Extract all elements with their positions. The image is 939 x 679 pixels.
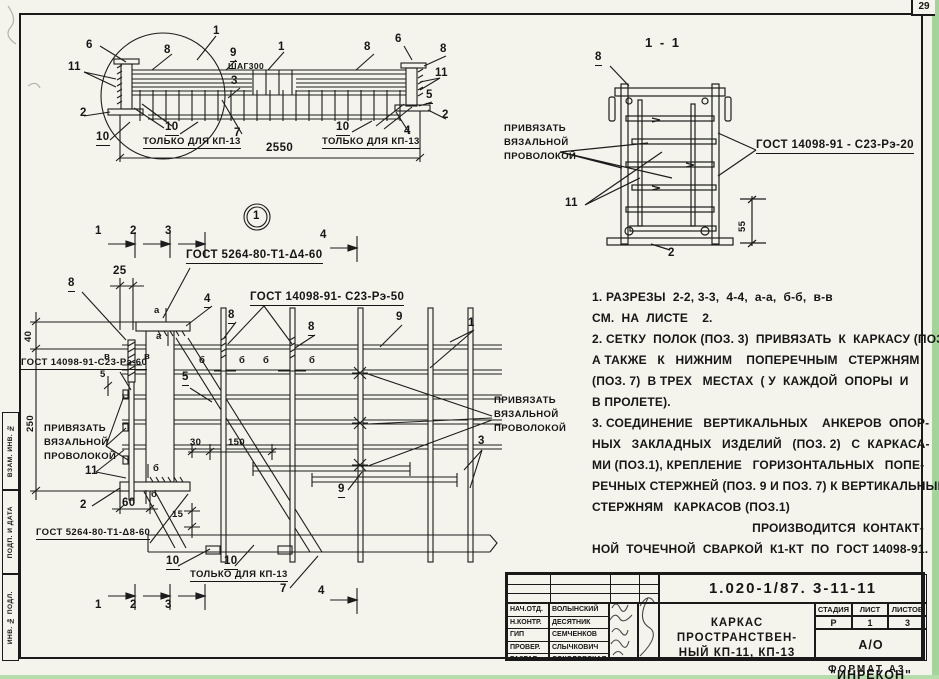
sheets-value: 3 bbox=[888, 616, 927, 629]
section-marker-2: 2 bbox=[130, 600, 137, 612]
note-line: ПРОИЗВОДИТСЯ КОНТАКТ- bbox=[592, 518, 924, 539]
person-name: СЛЫЧКОВИЧ bbox=[550, 641, 608, 654]
note-only-kp13: ТОЛЬКО ДЛЯ КП-13 bbox=[322, 137, 420, 149]
gost-weld-label: ГОСТ 5264-80-Т1-Δ8-60 bbox=[36, 528, 150, 540]
dim-5: 5 bbox=[100, 370, 106, 380]
callout-3: 3 bbox=[231, 76, 238, 88]
section-marker-3: 3 bbox=[165, 600, 172, 612]
note-line: НОЙ ТОЧЕЧНОЙ СВАРКОЙ К1-КТ ПО ГОСТ 14098… bbox=[592, 539, 924, 560]
callout-8: 8 bbox=[68, 278, 75, 292]
mark-b: б bbox=[263, 356, 269, 366]
signatures-column bbox=[609, 603, 638, 661]
mark-b: б bbox=[153, 464, 159, 474]
drawing-title-line1: КАРКАС ПРОСТРАНСТВЕН- bbox=[660, 604, 814, 646]
callout-4: 4 bbox=[204, 294, 211, 308]
tie-note-line2: ВЯЗАЛЬНОЙ bbox=[44, 438, 109, 448]
note-line: (ПОЗ. 7) В ТРЕХ МЕСТАХ ( У КАЖДОЙ ОПОРЫ … bbox=[592, 371, 924, 392]
callout-2: 2 bbox=[668, 248, 675, 260]
role-label: Н.КОНТР. bbox=[508, 616, 548, 629]
drawing-sheet: 29 ВЗАМ. ИНВ. № ПОДП. И ДАТА ИНВ. № ПОДЛ… bbox=[0, 0, 939, 679]
role-label: ГИП bbox=[508, 628, 548, 641]
drawing-title-line2: НЫЙ КП-11, КП-13 bbox=[660, 646, 814, 661]
mark-a: а bbox=[156, 332, 162, 342]
callout-10: 10 bbox=[165, 122, 179, 136]
tie-note-line1: ПРИВЯЗАТЬ bbox=[494, 396, 556, 406]
callout-8: 8 bbox=[595, 52, 602, 66]
mark-b: б bbox=[239, 356, 245, 366]
mark-v: в bbox=[104, 352, 110, 362]
dim-shag-300: ШАГ300 bbox=[228, 62, 264, 71]
title-block: НАЧ.ОТД. Н.КОНТР. ГИП ПРОВЕР. РАЗРАБ. ВО… bbox=[505, 572, 925, 661]
callout-2: 2 bbox=[442, 110, 449, 122]
callout-9: 9 bbox=[396, 312, 403, 324]
callout-6: 6 bbox=[86, 40, 93, 52]
section-marker-3: 3 bbox=[165, 226, 172, 238]
callout-11: 11 bbox=[565, 198, 578, 210]
stamp-vzam-inv: ВЗАМ. ИНВ. № bbox=[2, 412, 19, 490]
note-line: СМ. НА ЛИСТЕ 2. bbox=[592, 308, 924, 329]
note-only-kp13: ТОЛЬКО ДЛЯ КП-13 bbox=[143, 137, 241, 149]
mark-a: а bbox=[154, 306, 160, 316]
callout-2: 2 bbox=[80, 108, 87, 120]
role-label: ПРОВЕР. bbox=[508, 641, 548, 654]
dim-25: 25 bbox=[113, 266, 127, 278]
section-marker-4: 4 bbox=[318, 586, 325, 598]
dim-150: 150 bbox=[228, 438, 245, 448]
stage-label: СТАДИЯ bbox=[815, 603, 852, 616]
callout-7: 7 bbox=[234, 128, 241, 140]
note-line: А ТАКЖЕ К НИЖНИМ ПОПЕРЕЧНЫМ СТЕРЖНЯМ bbox=[592, 350, 924, 371]
document-number: 1.020-1/87. 3-11-11 bbox=[659, 574, 927, 603]
notes-block: 1. РАЗРЕЗЫ 2-2, 3-3, 4-4, а-а, б-б, в-в … bbox=[592, 287, 924, 560]
note-line: В ПРОЛЕТЕ). bbox=[592, 392, 924, 413]
callout-1: 1 bbox=[278, 42, 285, 54]
callout-6: 6 bbox=[395, 34, 402, 46]
callout-9: 9 bbox=[230, 48, 237, 62]
callout-8: 8 bbox=[228, 310, 235, 324]
callout-10: 10 bbox=[166, 556, 180, 570]
sheets-label: ЛИСТОВ bbox=[888, 603, 927, 616]
tie-note-line1: ПРИВЯЗАТЬ bbox=[504, 124, 566, 134]
note-line: 1. РАЗРЕЗЫ 2-2, 3-3, 4-4, а-а, б-б, в-в bbox=[592, 287, 924, 308]
sheet-number: 29 bbox=[918, 1, 929, 12]
callout-11: 11 bbox=[68, 62, 81, 74]
gost-weld-label: ГОСТ 14098-91 - С23-Рэ-20 bbox=[756, 140, 914, 154]
sheet-label: ЛИСТ bbox=[852, 603, 888, 616]
note-line: РЕЧНЫХ СТЕРЖНЕЙ (ПОЗ. 9 И ПОЗ. 7) К ВЕРТ… bbox=[592, 476, 924, 497]
dim-2550: 2550 bbox=[266, 143, 293, 155]
tie-note-line1: ПРИВЯЗАТЬ bbox=[44, 424, 106, 434]
tie-note-line2: ВЯЗАЛЬНОЙ bbox=[494, 410, 559, 420]
dim-30: 30 bbox=[190, 438, 201, 448]
callout-1: 1 bbox=[213, 26, 220, 38]
callout-11: 11 bbox=[85, 466, 98, 478]
section-marker-1: 1 bbox=[95, 600, 102, 612]
note-line: НЫХ ЗАКЛАДНЫХ ИЗДЕЛИЙ (ПОЗ. 2) С КАРКАСА… bbox=[592, 434, 924, 455]
role-label: НАЧ.ОТД. bbox=[508, 604, 548, 616]
person-name: ВОЛЫНСКИЙ bbox=[550, 604, 608, 616]
tie-note-line3: ПРОВОЛОКОЙ bbox=[44, 452, 116, 462]
mark-b: б bbox=[309, 356, 315, 366]
section-title: 1 - 1 bbox=[645, 36, 681, 49]
callout-8: 8 bbox=[364, 42, 371, 54]
revision-grid bbox=[507, 574, 659, 603]
callout-10: 10 bbox=[224, 556, 238, 570]
callout-4: 4 bbox=[404, 126, 411, 138]
detail-circle-1: 1 bbox=[253, 211, 260, 223]
section-marker-4: 4 bbox=[320, 230, 327, 242]
tie-note-line3: ПРОВОЛОКОЙ bbox=[504, 152, 576, 162]
gost-weld-label: ГОСТ 14098-91-С23-Рэ-60 bbox=[21, 358, 147, 370]
scan-edge-bottom bbox=[0, 675, 939, 679]
callout-10: 10 bbox=[336, 122, 350, 136]
mark-v: в bbox=[144, 352, 150, 362]
callout-8: 8 bbox=[308, 322, 315, 336]
tie-note-line3: ПРОВОЛОКОЙ bbox=[494, 424, 566, 434]
callout-8: 8 bbox=[440, 44, 447, 56]
mark-b: б bbox=[199, 356, 205, 366]
callout-10: 10 bbox=[96, 132, 110, 146]
callout-5: 5 bbox=[426, 90, 433, 104]
dates-column bbox=[638, 603, 659, 661]
note-line: 3. СОЕДИНЕНИЕ ВЕРТИКАЛЬНЫХ АНКЕРОВ ОПОР- bbox=[592, 413, 924, 434]
names-column: ВОЛЫНСКИЙ ДЕСЯТНИК СЕМЧЕНКОВ СЛЫЧКОВИЧ С… bbox=[549, 603, 609, 661]
dim-250: 250 bbox=[26, 415, 36, 432]
gost-weld-label: ГОСТ 5264-80-Т1-Δ4-60 bbox=[186, 250, 323, 264]
section-marker-1: 1 bbox=[95, 226, 102, 238]
sheet-value: 1 bbox=[852, 616, 888, 629]
mark-b: б bbox=[151, 490, 157, 500]
callout-2: 2 bbox=[80, 500, 87, 512]
note-line: МИ (ПОЗ.1), КРЕПЛЕНИЕ ГОРИЗОНТАЛЬНЫХ ПОП… bbox=[592, 455, 924, 476]
roles-column: НАЧ.ОТД. Н.КОНТР. ГИП ПРОВЕР. РАЗРАБ. bbox=[507, 603, 549, 661]
section-marker-2: 2 bbox=[130, 226, 137, 238]
person-name: СОКОЛОВСКАЯ bbox=[550, 653, 608, 666]
callout-1: 1 bbox=[468, 318, 475, 330]
dim-40: 40 bbox=[24, 331, 34, 342]
stamp-inv-podl: ИНВ. № ПОДЛ. bbox=[2, 574, 19, 661]
dim-55: 55 bbox=[738, 221, 748, 232]
callout-7: 7 bbox=[280, 584, 287, 596]
person-name: ДЕСЯТНИК bbox=[550, 616, 608, 629]
dim-15: 15 bbox=[172, 510, 183, 520]
drawing-title-cell: КАРКАС ПРОСТРАНСТВЕН- НЫЙ КП-11, КП-13 bbox=[659, 603, 815, 661]
note-line: СТЕРЖНЯМ КАРКАСОВ (ПОЗ.1) bbox=[592, 497, 924, 518]
note-line: 2. СЕТКУ ПОЛОК (ПОЗ. 3) ПРИВЯЗАТЬ К КАРК… bbox=[592, 329, 924, 350]
note-only-kp13: ТОЛЬКО ДЛЯ КП-13 bbox=[190, 570, 288, 582]
format-note: ФОРМАТ А3 bbox=[828, 664, 906, 675]
sheet-number-box: 29 bbox=[911, 0, 935, 16]
callout-8: 8 bbox=[164, 45, 171, 57]
tie-note-line2: ВЯЗАЛЬНОЙ bbox=[504, 138, 569, 148]
callout-11: 11 bbox=[435, 68, 448, 80]
callout-9: 9 bbox=[338, 484, 345, 498]
stage-value: Р bbox=[815, 616, 852, 629]
gost-weld-label: ГОСТ 14098-91- С23-Рэ-50 bbox=[250, 292, 404, 306]
callout-5: 5 bbox=[182, 372, 189, 386]
dim-60: 60 bbox=[122, 498, 136, 510]
callout-3: 3 bbox=[478, 436, 485, 448]
person-name: СЕМЧЕНКОВ bbox=[550, 628, 608, 641]
organization-name: А/О "ИНРЕКОН" bbox=[815, 629, 927, 661]
role-label: РАЗРАБ. bbox=[508, 653, 548, 666]
stamp-podp-data: ПОДП. И ДАТА bbox=[2, 490, 19, 574]
